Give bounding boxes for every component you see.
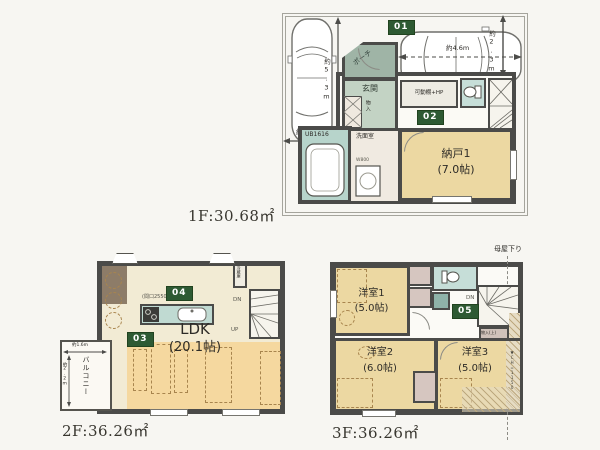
washing-machine-icon: [355, 165, 381, 197]
area-label-1f: 1F:30.68㎡: [188, 205, 275, 226]
bedroom-3-size: (5.0帖): [437, 363, 513, 375]
badge-05: 05: [452, 304, 479, 319]
washer-width-label: W800: [356, 158, 369, 163]
ceiling-height-note: ▼CH=1150: [509, 350, 514, 390]
washroom-label: 洗面室: [356, 134, 374, 141]
washbasin-3f: [432, 292, 450, 310]
toilet-icon: [440, 269, 460, 285]
badge-03: 03: [127, 332, 154, 347]
ldk-size: (20.1帖): [145, 341, 245, 356]
bedroom-1-name: 洋室1: [335, 288, 408, 300]
area-label-2f: 2F:36.26㎡: [62, 420, 149, 441]
shoe-cabinet-icon: [344, 96, 362, 128]
floor-plan-canvas: 約5.3m 約2.6m 約4.6m 約2.3m ポーチ 玄関: [0, 0, 600, 450]
badge-04: 04: [166, 286, 193, 301]
ldk-name: LDK: [150, 321, 240, 338]
area-label-3f: 3F:36.26㎡: [332, 422, 419, 443]
balcony-label: バルコニー: [82, 356, 90, 396]
stairs-down-label-2f: DN: [233, 297, 241, 303]
closet-between-rooms: [413, 371, 437, 403]
badge-01: 01: [388, 20, 415, 35]
bedroom-2-name: 洋室2: [340, 347, 420, 359]
closet-3f-b: [408, 287, 432, 308]
bathtub-icon: [304, 142, 346, 198]
toilet-icon: [463, 84, 483, 100]
storage-size: (7.0帖): [400, 164, 512, 177]
stairs-2f-treads: [251, 291, 278, 337]
dim-parking-left-length: 約5.3m: [322, 58, 329, 102]
dim-parking-right-width: 約2.3m: [487, 30, 494, 74]
bath-label: UB1616: [305, 132, 329, 139]
cabinet-label: 物入: [364, 100, 370, 112]
bedroom-1-size: (5.0帖): [335, 303, 408, 315]
balcony-depth-arrow: [66, 355, 72, 407]
shelf-label: 可動棚+HP: [400, 90, 458, 96]
balcony-width-label: 約1.6m: [72, 343, 88, 348]
bedroom-2-size: (6.0帖): [340, 363, 420, 375]
closet-under-stairs-label: 物入(上): [481, 331, 496, 336]
storage-name: 納戸1: [400, 148, 512, 161]
entrance-label: 玄関: [362, 84, 378, 93]
fridge-label: 冷蔵庫: [236, 266, 241, 278]
badge-02: 02: [417, 110, 444, 125]
dimension-arrow-vertical: [499, 15, 507, 77]
hatched-area-stairs: [509, 313, 520, 341]
stairs-1f-treads: [490, 80, 512, 128]
closet-3f-a: [408, 265, 432, 286]
stairs-down-label-3f: DN: [466, 295, 474, 301]
dim-parking-right-length: 約4.6m: [446, 45, 469, 52]
roof-note-label: 母屋下り: [494, 245, 522, 253]
low-ceiling-corner: [462, 387, 520, 412]
kitchen-width-label: (間口2550): [142, 295, 169, 301]
